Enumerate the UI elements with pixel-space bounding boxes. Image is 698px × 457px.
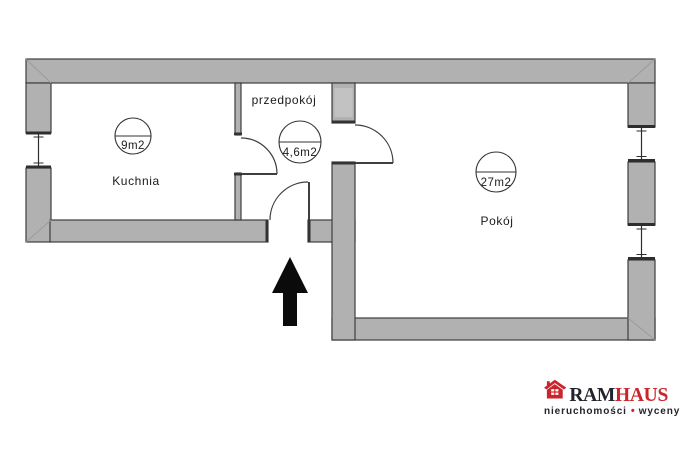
door-kitchen: [234, 133, 277, 176]
window-right-lower: [628, 223, 655, 260]
brand-prefix: RAM: [569, 385, 615, 406]
house-icon: [544, 376, 566, 403]
area-badge-kitchen: 9m2: [115, 118, 151, 154]
area-badge-room: 27m2: [476, 152, 516, 192]
room-name-kitchen: Kuchnia: [112, 174, 160, 188]
window-left: [26, 132, 51, 169]
agency-logo: RAMHAUS nieruchomości • wyceny: [544, 376, 668, 417]
wall-bottom-room: [332, 318, 655, 340]
partition-kitchen-hall-upper: [235, 83, 241, 135]
wall-shading-patch: [335, 88, 353, 117]
wall-bottom-kitchen: [50, 220, 268, 242]
tagline-word2: wyceny: [639, 407, 681, 417]
tagline-separator-dot: •: [631, 406, 635, 417]
wall-right-lower: [628, 260, 655, 340]
brand-suffix: HAUS: [615, 385, 668, 406]
logo-top-row: RAMHAUS: [544, 376, 668, 403]
wall-right-upper: [628, 83, 655, 127]
partition-kitchen-hall-lower: [235, 173, 241, 220]
floor-plan-page: 9m2 4,6m2 27m2 Kuchnia przedpokój Pokój: [0, 0, 698, 457]
kitchen-area-label: 9m2: [121, 140, 145, 152]
brand-wordmark: RAMHAUS: [569, 386, 668, 406]
entrance-arrow-icon: [272, 257, 308, 326]
wall-left-upper: [26, 83, 51, 133]
wall-divider-lower: [332, 162, 355, 340]
room-name-hallway: przedpokój: [252, 93, 317, 107]
wall-right-mid: [628, 162, 655, 225]
room-area-label: 27m2: [481, 177, 512, 189]
tagline-word1: nieruchomości: [544, 407, 627, 417]
room-name-room: Pokój: [480, 214, 513, 228]
hallway-area-label: 4,6m2: [283, 147, 317, 159]
wall-top: [26, 59, 655, 83]
logo-tagline: nieruchomości • wyceny: [544, 406, 668, 417]
window-right-upper: [628, 125, 655, 162]
door-entrance: [266, 182, 311, 242]
door-room: [332, 121, 393, 165]
area-badge-hallway: 4,6m2: [279, 121, 321, 163]
